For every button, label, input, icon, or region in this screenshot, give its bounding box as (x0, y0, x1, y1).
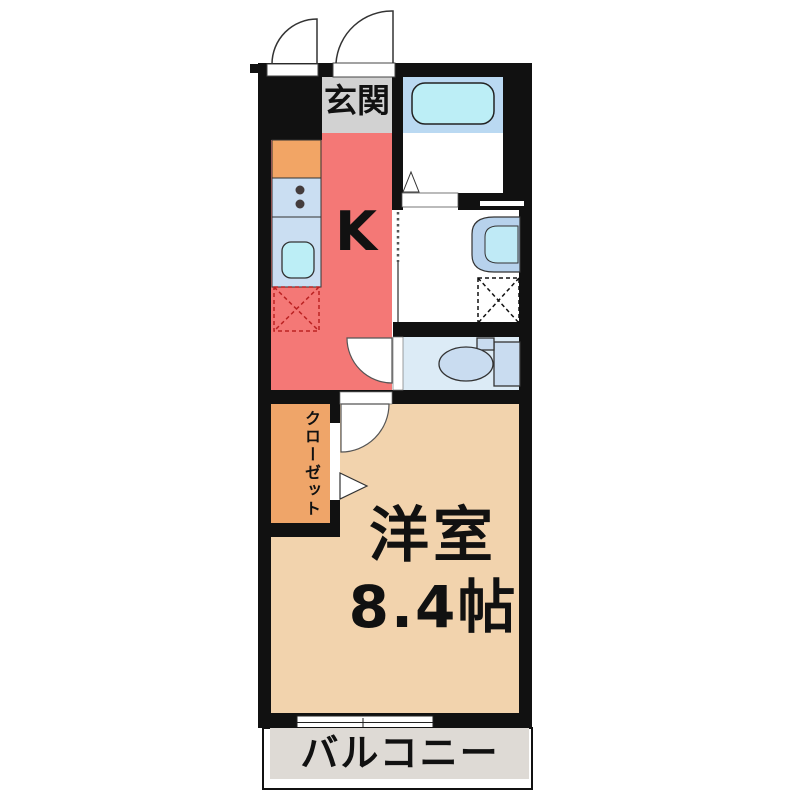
room-name-label: 洋室 (318, 505, 548, 568)
stove-burner-1 (296, 186, 305, 195)
bath-door-leaf (402, 193, 458, 207)
toilet-door-leaf (393, 337, 403, 390)
entry-door-swing-left (272, 19, 317, 64)
kitchen-sink (282, 242, 314, 278)
entry-door-swing-main (336, 11, 393, 63)
kitchen-counter (272, 140, 321, 178)
floorplan-drawing (0, 0, 800, 800)
apartment-floorplan: 玄関 K クローゼット 洋室 8.4帖 バルコニー (0, 0, 800, 800)
kitchen-label: K (318, 204, 394, 261)
balcony-label: バルコニー (270, 734, 530, 774)
closet-label: クローゼット (283, 408, 319, 520)
room-door-leaf (340, 392, 392, 404)
entry-door-leaf-main (333, 63, 395, 77)
closet-door-opening (330, 423, 340, 500)
stove-unit (272, 178, 321, 217)
wall-bath-right (503, 63, 532, 210)
entrance-label: 玄関 (320, 84, 394, 119)
entry-door-leaf-left (267, 64, 318, 76)
wall-notch (250, 64, 258, 73)
room-size-label: 8.4帖 (318, 577, 548, 638)
washbasin-bowl (485, 226, 518, 263)
bathtub (412, 83, 494, 124)
wall-window (480, 201, 524, 206)
bath-floor (402, 133, 503, 193)
stove-burner-2 (296, 200, 305, 209)
wall-washroom-toilet (393, 322, 532, 337)
